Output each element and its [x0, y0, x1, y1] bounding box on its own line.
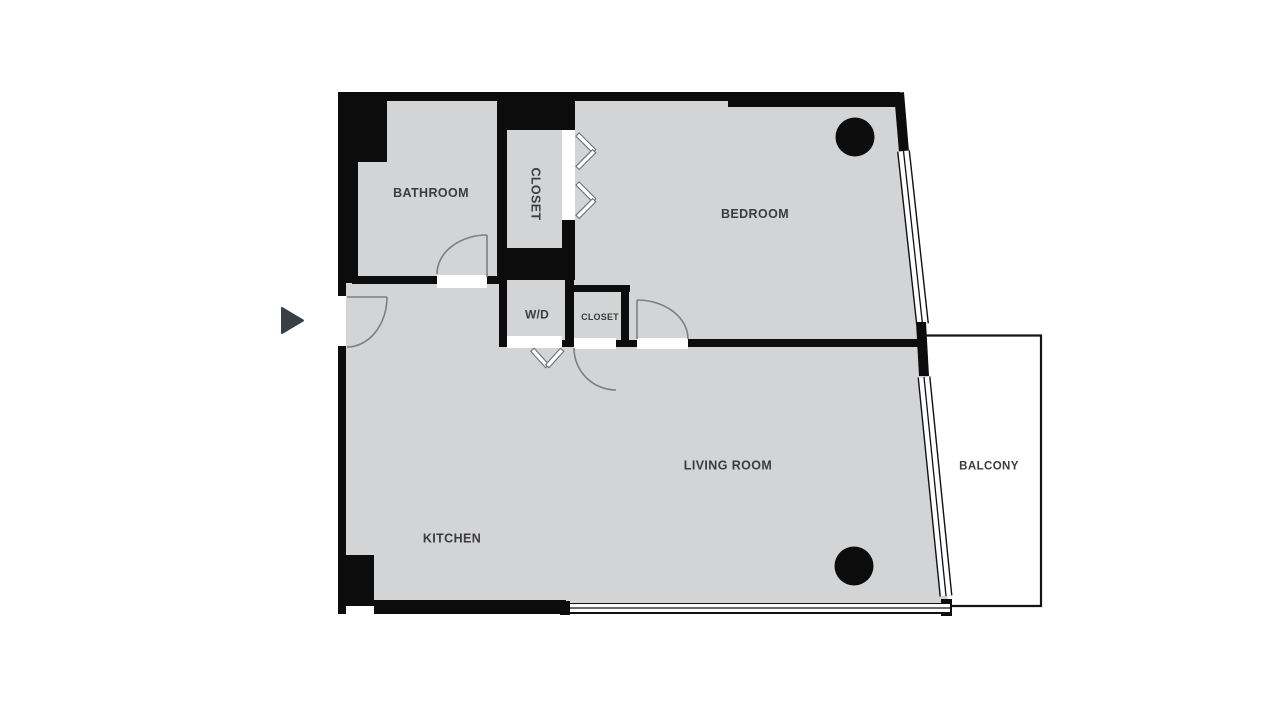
- svg-text:BATHROOM: BATHROOM: [393, 186, 469, 200]
- svg-text:LIVING ROOM: LIVING ROOM: [684, 459, 772, 473]
- svg-text:KITCHEN: KITCHEN: [423, 532, 481, 546]
- svg-text:BEDROOM: BEDROOM: [721, 207, 789, 221]
- svg-text:W/D: W/D: [525, 308, 549, 322]
- svg-text:CLOSET: CLOSET: [581, 312, 619, 322]
- svg-text:CLOSET: CLOSET: [529, 167, 543, 220]
- svg-text:BALCONY: BALCONY: [959, 461, 1019, 473]
